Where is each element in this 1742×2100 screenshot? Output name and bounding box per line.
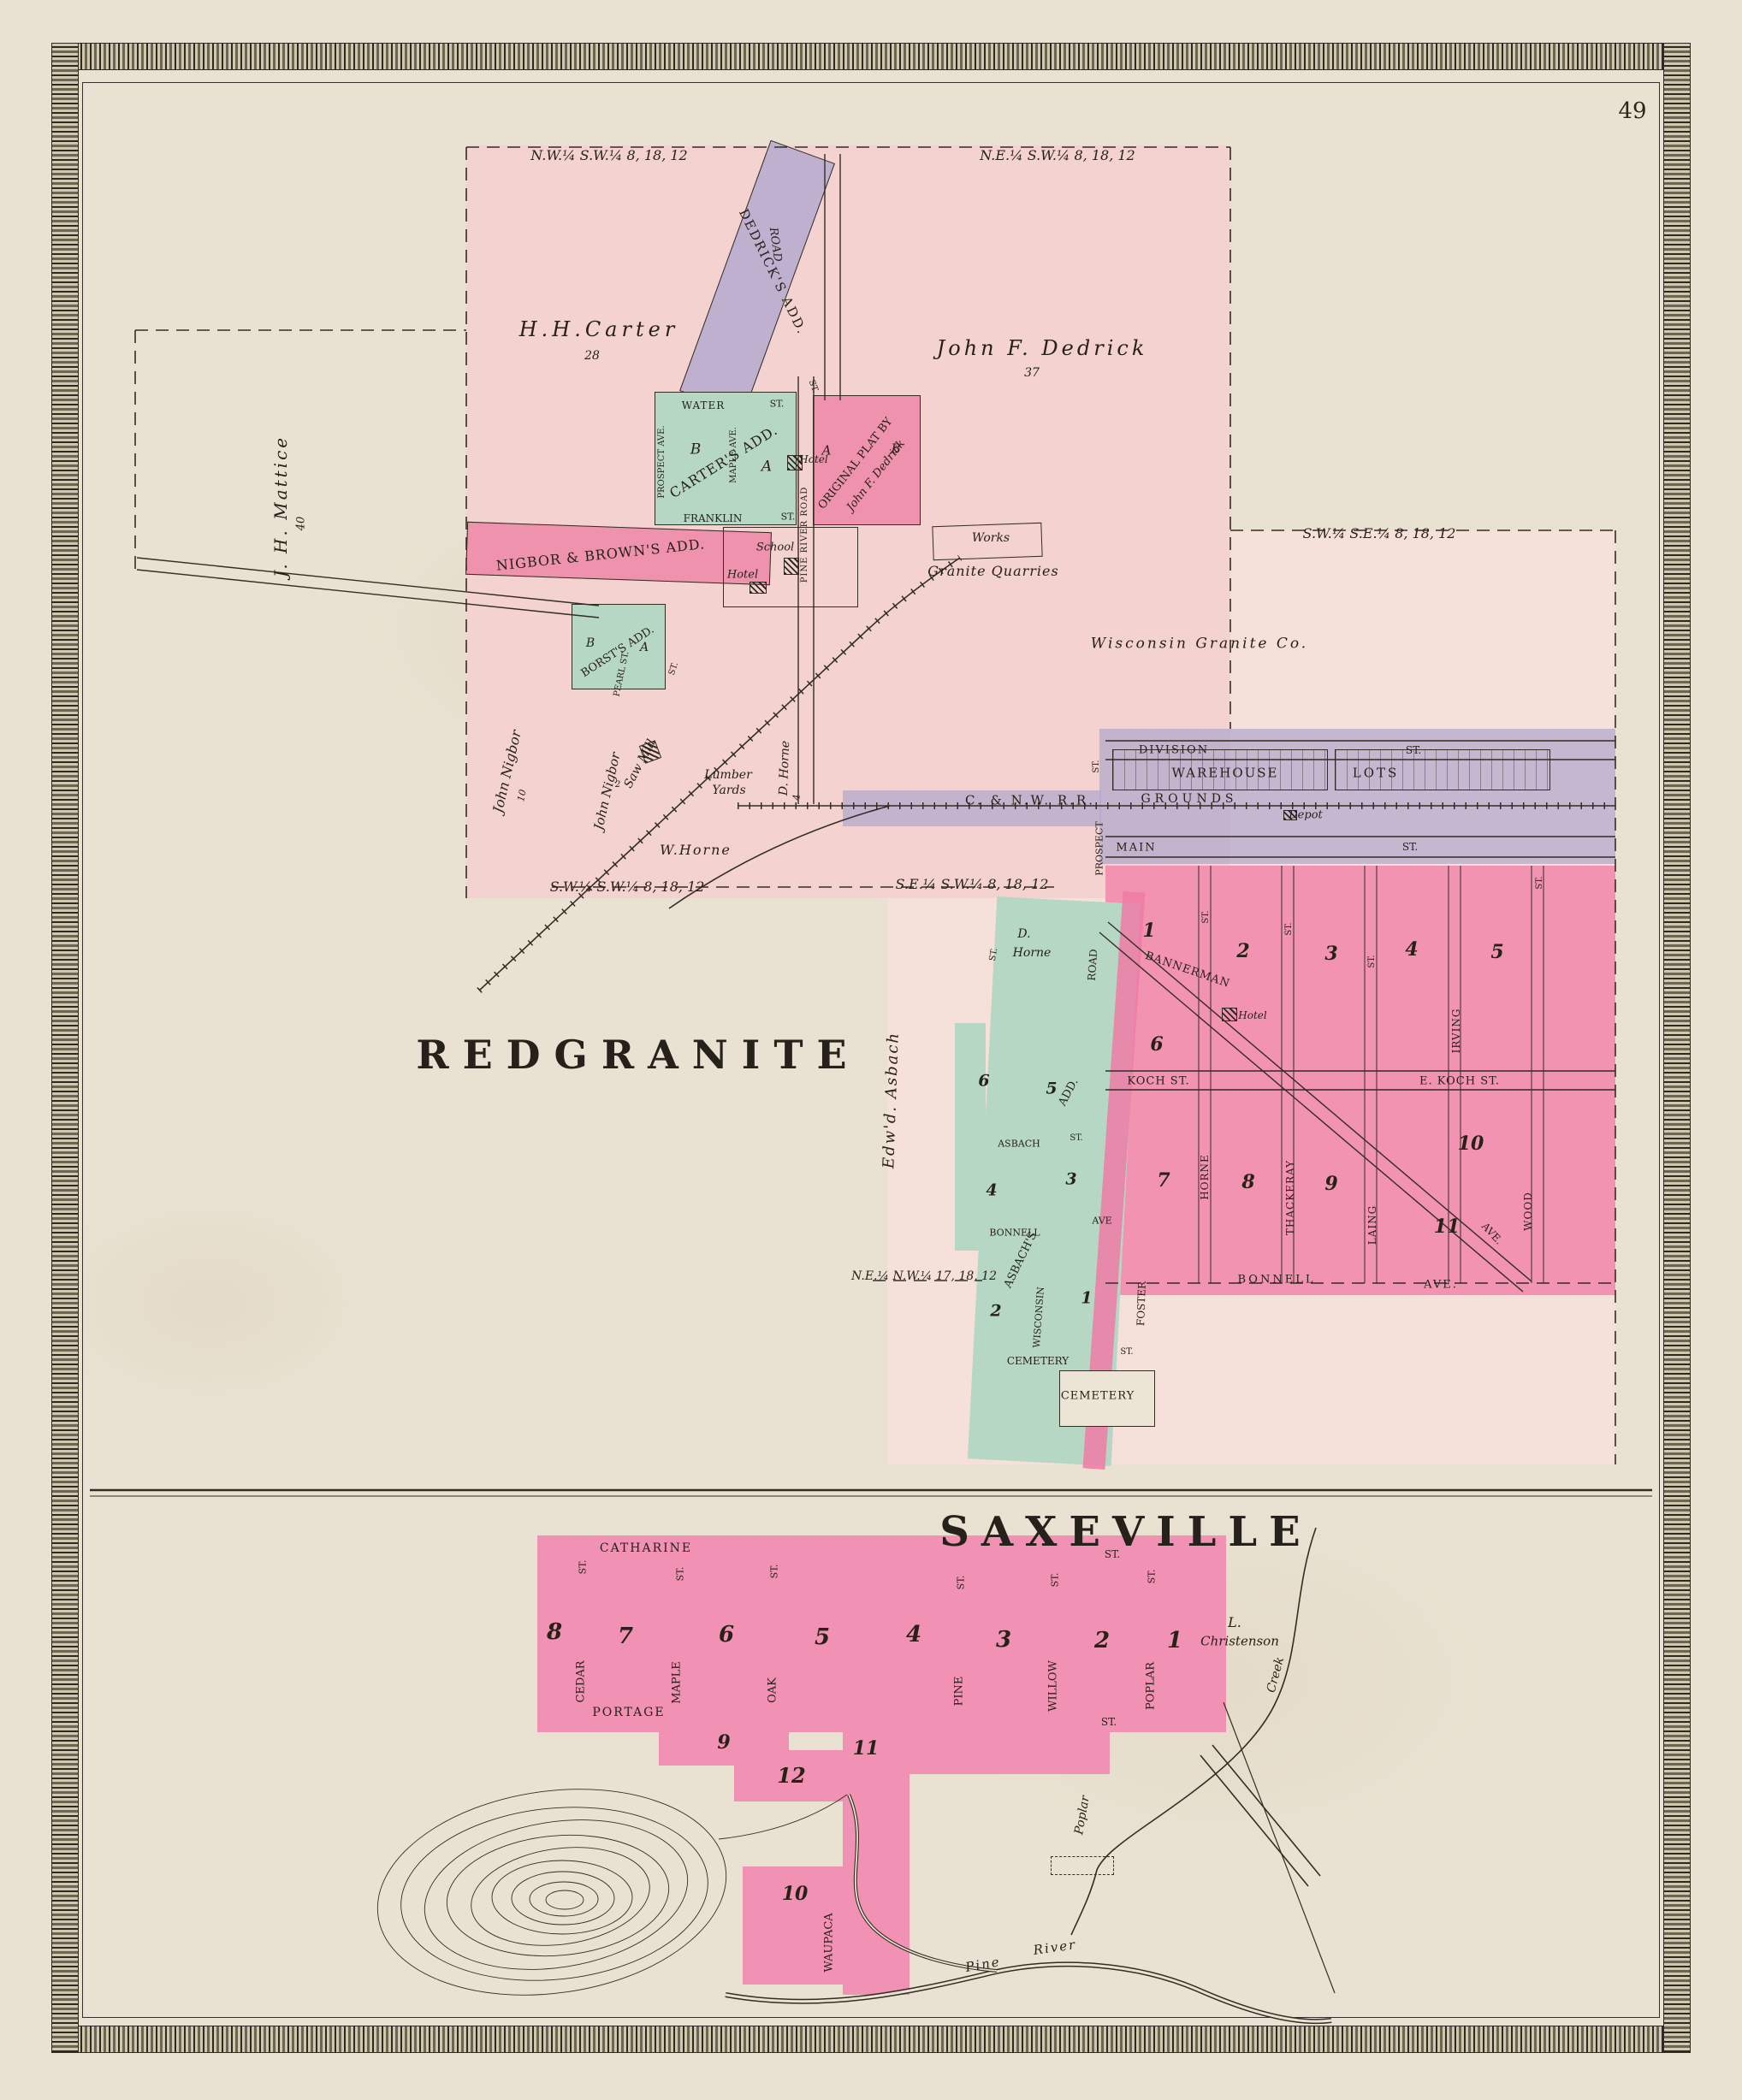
label-e-koch-st: E. KOCH ST. bbox=[1419, 1076, 1500, 1087]
label-pine: Pine bbox=[964, 1955, 1001, 1974]
label-main: MAIN bbox=[1116, 843, 1156, 854]
rr-crossing-dash-box bbox=[1051, 1856, 1114, 1875]
label-depot: Depot bbox=[1289, 810, 1323, 821]
label-s-w-s-w-8-18-12: S.W.¼ S.W.¼ 8, 18, 12 bbox=[550, 880, 705, 894]
label-9: 9 bbox=[717, 1733, 730, 1752]
label-4: 4 bbox=[1405, 940, 1418, 959]
label-st: ST. bbox=[1101, 1717, 1117, 1727]
label-5: 5 bbox=[1490, 943, 1503, 961]
label-st: ST. bbox=[1120, 1348, 1133, 1357]
label-st: ST. bbox=[957, 1576, 966, 1590]
label-laing: LAING bbox=[1367, 1205, 1378, 1245]
label-6: 6 bbox=[719, 1624, 734, 1646]
label-n-e-n-w-17-18-12: N.E.¼ N.W.¼ 17, 18, 12 bbox=[851, 1270, 997, 1282]
label-st: ST. bbox=[1093, 760, 1101, 772]
label-hotel: Hotel bbox=[727, 570, 758, 581]
label-works: Works bbox=[972, 532, 1010, 544]
label-b: B bbox=[891, 443, 900, 456]
label-st: ST. bbox=[1406, 745, 1421, 755]
label-l: L. bbox=[1228, 1616, 1241, 1630]
label-water: WATER bbox=[682, 400, 726, 411]
label-lots: LOTS bbox=[1353, 767, 1400, 780]
label-s-e-s-w-8-18-12: S.E.¼ S.W.¼ 8, 18, 12 bbox=[896, 878, 1049, 891]
label-1: 1 bbox=[1142, 921, 1155, 940]
border-band-top bbox=[51, 43, 1691, 70]
label-grounds: GROUNDS bbox=[1141, 793, 1237, 805]
school-hatch bbox=[784, 558, 799, 575]
label-a: A bbox=[761, 460, 772, 475]
label-2: 2 bbox=[615, 781, 620, 790]
label-hotel: Hotel bbox=[1238, 1010, 1266, 1020]
label-3: 3 bbox=[996, 1629, 1011, 1651]
label-prospect: PROSPECT bbox=[1095, 821, 1105, 875]
label-warehouse: WAREHOUSE bbox=[1172, 767, 1279, 780]
label-wisconsin-granite-co: Wisconsin Granite Co. bbox=[1091, 637, 1308, 652]
label-river: River bbox=[1033, 1938, 1077, 1957]
label-oak: OAK bbox=[767, 1677, 779, 1703]
label-1: 1 bbox=[1167, 1630, 1182, 1652]
sx-rr-line bbox=[1224, 1702, 1335, 1993]
label-christenson: Christenson bbox=[1200, 1636, 1279, 1648]
label-w-horne: W.Horne bbox=[660, 843, 732, 857]
label-portage: PORTAGE bbox=[592, 1707, 665, 1718]
label-3: 3 bbox=[1065, 1172, 1076, 1188]
label-10: 10 bbox=[516, 789, 528, 802]
label-school: School bbox=[756, 542, 794, 553]
label-4: 4 bbox=[906, 1624, 921, 1646]
label-cemetery: CEMETERY bbox=[1007, 1356, 1069, 1366]
label-yards: Yards bbox=[712, 784, 745, 796]
label-5: 5 bbox=[815, 1626, 830, 1648]
block11-column bbox=[843, 1774, 910, 1995]
label-asbach: ASBACH bbox=[998, 1139, 1040, 1149]
label-lumber: Lumber bbox=[704, 769, 752, 781]
label-waupaca: WAUPACA bbox=[824, 1913, 835, 1972]
page-number: 49 bbox=[1618, 98, 1646, 124]
label-9: 9 bbox=[1324, 1174, 1337, 1193]
label-st: ST. bbox=[781, 512, 796, 522]
label-poplar: POPLAR bbox=[1146, 1662, 1157, 1710]
label-bonnell: BONNELL bbox=[1238, 1275, 1316, 1286]
label-s-w-s-e-8-18-12: S.W.¼ S.E.¼ 8, 18, 12 bbox=[1303, 527, 1456, 541]
label-7: 7 bbox=[618, 1625, 633, 1647]
label-6: 6 bbox=[978, 1074, 989, 1090]
label-6: 6 bbox=[1150, 1035, 1163, 1054]
east-hotel-hatch bbox=[1222, 1008, 1237, 1021]
label-5: 5 bbox=[1046, 1081, 1057, 1097]
label-11: 11 bbox=[853, 1739, 880, 1758]
label-irving: IRVING bbox=[1451, 1009, 1461, 1054]
label-b: B bbox=[690, 443, 702, 458]
label-st: ST. bbox=[1105, 1549, 1120, 1559]
hotel-hatch bbox=[750, 582, 767, 594]
sx-rr-line bbox=[1212, 1745, 1320, 1876]
label-koch-st: KOCH ST. bbox=[1127, 1076, 1189, 1087]
label-thackeray: THACKERAY bbox=[1285, 1160, 1295, 1235]
label-d-horne: D. Horne bbox=[778, 741, 791, 796]
label-8: 8 bbox=[1241, 1173, 1254, 1192]
label-j-h-mattice: J. H. Mattice bbox=[272, 435, 289, 577]
label-st: ST. bbox=[578, 1560, 588, 1575]
label-28: 28 bbox=[584, 350, 600, 362]
label-cedar: CEDAR bbox=[576, 1660, 587, 1702]
label-ave: AVE bbox=[1092, 1216, 1111, 1226]
label-2: 2 bbox=[990, 1304, 1001, 1320]
block11-strip bbox=[843, 1730, 1110, 1774]
label-ave: AVE. bbox=[1424, 1280, 1458, 1291]
label-7: 7 bbox=[1157, 1171, 1170, 1190]
label-st: ST. bbox=[1536, 876, 1544, 889]
label-8: 8 bbox=[547, 1621, 562, 1643]
label-st: ST. bbox=[1285, 922, 1294, 935]
label-granite-quarries: Granite Quarries bbox=[927, 565, 1058, 578]
border-band-left bbox=[51, 43, 79, 2053]
label-prospect-ave: PROSPECT AVE. bbox=[658, 425, 667, 498]
sx-rr-line bbox=[1200, 1755, 1308, 1886]
label-st: ST. bbox=[770, 399, 785, 409]
label-2: 2 bbox=[1236, 942, 1249, 961]
label-maple: MAPLE bbox=[672, 1661, 683, 1704]
border-band-right bbox=[1663, 43, 1691, 2053]
label-h-h-carter: H.H.Carter bbox=[519, 319, 679, 340]
label-4: 4 bbox=[986, 1183, 997, 1199]
label-st: ST. bbox=[676, 1567, 685, 1582]
label-2: 2 bbox=[1094, 1630, 1110, 1652]
label-n-w-s-w-8-18-12: N.W.¼ S.W.¼ 8, 18, 12 bbox=[530, 149, 687, 163]
label-a: A bbox=[640, 642, 649, 654]
label-pine: PINE bbox=[954, 1677, 965, 1707]
label-d: D. bbox=[1017, 928, 1030, 940]
label-11: 11 bbox=[1434, 1217, 1461, 1236]
label-12: 12 bbox=[777, 1766, 805, 1786]
label-wood: WOOD bbox=[1523, 1192, 1533, 1231]
label-pine-river-road: PINE RIVER ROAD bbox=[801, 487, 809, 583]
label-creek: Creek bbox=[1265, 1656, 1287, 1695]
label-franklin: FRANKLIN bbox=[684, 513, 743, 524]
label-horne: HORNE bbox=[1200, 1154, 1210, 1200]
label-catharine: CATHARINE bbox=[600, 1542, 692, 1554]
label-horne: Horne bbox=[1013, 947, 1052, 959]
label-st: ST. bbox=[1069, 1134, 1082, 1143]
label-a: A bbox=[822, 445, 832, 458]
label-st: ST. bbox=[1202, 910, 1211, 923]
label-st: ST. bbox=[1402, 842, 1418, 852]
label-st: ST. bbox=[1368, 955, 1377, 967]
label-poplar: Poplar bbox=[1073, 1795, 1092, 1836]
label-st: ST. bbox=[1051, 1573, 1060, 1588]
label-john-f-dedrick: John F. Dedrick bbox=[937, 338, 1148, 358]
redgranite-title: REDGRANITE bbox=[416, 1032, 860, 1078]
label-40: 40 bbox=[296, 517, 307, 531]
asbachs-add-step bbox=[955, 1023, 986, 1251]
label-4: 4 bbox=[791, 794, 801, 800]
label-37: 37 bbox=[1024, 367, 1040, 379]
label-st: ST. bbox=[1147, 1570, 1157, 1584]
border-band-bottom bbox=[51, 2026, 1691, 2053]
label-cemetery: CEMETERY bbox=[1061, 1391, 1135, 1402]
label-st: ST. bbox=[770, 1565, 779, 1579]
label-road: ROAD bbox=[1087, 949, 1099, 981]
label-b: B bbox=[586, 637, 595, 649]
atlas-page: 49 bbox=[0, 0, 1742, 2100]
label-c-n-w-r-r: C. & N.W. R.R. bbox=[965, 795, 1095, 807]
label-n-e-s-w-8-18-12: N.E.¼ S.W.¼ 8, 18, 12 bbox=[980, 149, 1135, 163]
saxeville-band bbox=[537, 1535, 1226, 1732]
label-10: 10 bbox=[782, 1884, 809, 1903]
label-willow: WILLOW bbox=[1048, 1660, 1059, 1712]
saxeville-title: SAXEVILLE bbox=[939, 1508, 1312, 1556]
label-3: 3 bbox=[1324, 944, 1337, 963]
label-1: 1 bbox=[1081, 1291, 1092, 1307]
label-foster: FOSTER bbox=[1135, 1281, 1147, 1327]
label-division: DIVISION bbox=[1139, 745, 1209, 756]
label-10: 10 bbox=[1458, 1134, 1484, 1153]
